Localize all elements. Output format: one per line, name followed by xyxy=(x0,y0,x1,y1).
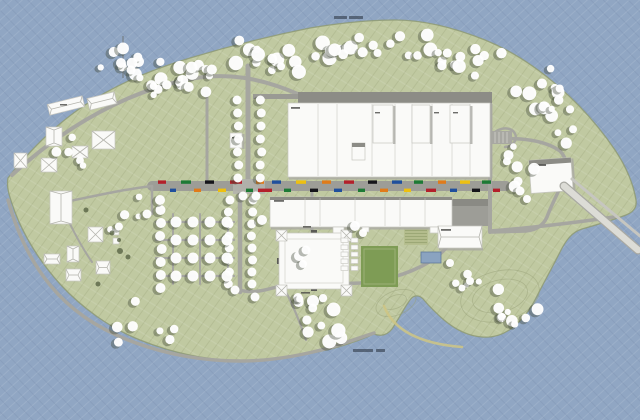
building xyxy=(270,197,453,230)
tree xyxy=(143,210,152,219)
tree xyxy=(257,215,267,225)
text-label-smudge xyxy=(453,112,458,113)
tree xyxy=(247,280,256,289)
tree xyxy=(150,92,156,98)
cabin xyxy=(341,259,348,264)
tree xyxy=(328,43,341,56)
shop-sign xyxy=(334,189,342,192)
building xyxy=(88,227,103,242)
shop-sign xyxy=(368,180,377,183)
entrance-mark xyxy=(311,230,317,233)
tree xyxy=(256,96,265,105)
tree xyxy=(510,85,522,97)
tree xyxy=(561,138,572,149)
tree xyxy=(98,64,104,70)
building-footprint xyxy=(373,105,393,143)
shop-sign xyxy=(344,180,354,183)
shop-sign xyxy=(414,180,423,183)
building-footprint xyxy=(279,233,349,289)
tree xyxy=(188,271,199,282)
cabin xyxy=(351,245,358,250)
cabin xyxy=(341,266,348,271)
building xyxy=(352,143,365,160)
tree xyxy=(331,323,345,337)
tree xyxy=(68,134,75,141)
shop-sign xyxy=(272,180,281,183)
pool xyxy=(421,252,441,263)
tree xyxy=(248,208,257,217)
building xyxy=(279,233,349,289)
tree xyxy=(554,95,563,104)
tree xyxy=(437,61,446,70)
tree xyxy=(251,293,260,302)
tree xyxy=(112,322,123,333)
tree xyxy=(522,86,536,100)
building-shadow xyxy=(439,248,483,251)
tree xyxy=(233,96,242,105)
tree xyxy=(523,195,531,203)
building-shadow xyxy=(430,106,433,144)
building xyxy=(44,254,60,264)
tree xyxy=(369,41,378,50)
building-shadow xyxy=(242,134,245,149)
tree xyxy=(171,271,182,282)
shop-sign xyxy=(404,189,411,192)
tree xyxy=(116,58,126,68)
cabin xyxy=(351,238,358,243)
text-label-smudge xyxy=(441,229,451,231)
tree xyxy=(257,148,266,157)
shop-sign xyxy=(194,189,201,192)
shop-sign xyxy=(296,180,306,183)
tree xyxy=(505,309,511,315)
tree xyxy=(374,49,382,57)
shop-sign xyxy=(392,180,402,183)
tree xyxy=(64,148,72,156)
tree xyxy=(207,65,217,75)
shop-sign xyxy=(218,189,226,192)
shop-sign xyxy=(438,180,446,183)
tree xyxy=(498,313,506,321)
text-label-smudge xyxy=(291,107,300,109)
tree xyxy=(225,196,234,205)
tree xyxy=(156,218,166,228)
sports-field xyxy=(361,246,398,287)
bush xyxy=(96,282,101,287)
building xyxy=(276,230,287,241)
tree xyxy=(556,84,564,92)
tree xyxy=(136,194,143,201)
building xyxy=(50,191,72,224)
tree xyxy=(222,271,233,282)
tree xyxy=(188,235,199,246)
tree xyxy=(171,217,182,228)
cabin xyxy=(351,259,358,264)
tree xyxy=(358,47,368,57)
site-plan-canvas xyxy=(0,0,640,420)
tree xyxy=(521,314,530,323)
tree xyxy=(459,285,466,292)
tree xyxy=(222,217,233,228)
tree xyxy=(549,106,555,112)
tree xyxy=(170,325,179,334)
tree xyxy=(395,31,405,41)
tree xyxy=(292,65,306,79)
shop-sign xyxy=(258,189,272,192)
tree xyxy=(205,253,216,264)
tree xyxy=(229,56,243,70)
tree xyxy=(131,297,140,306)
tree xyxy=(386,39,394,47)
text-label-smudge xyxy=(60,104,67,106)
tree xyxy=(532,303,544,315)
tree xyxy=(257,109,266,118)
roof-edge xyxy=(352,143,365,147)
tree xyxy=(201,87,212,98)
building-shadow xyxy=(490,104,493,178)
tree xyxy=(51,147,61,157)
tree xyxy=(466,277,474,285)
building-shadow xyxy=(470,106,473,144)
tree xyxy=(156,257,166,267)
building xyxy=(92,131,115,149)
tree xyxy=(277,62,285,70)
tree xyxy=(233,109,242,118)
paved-surface xyxy=(452,199,488,206)
tree xyxy=(231,286,240,295)
tree xyxy=(282,44,295,57)
tree xyxy=(256,135,265,144)
building-shadow xyxy=(289,177,491,180)
cabin xyxy=(341,245,348,250)
shop-sign xyxy=(472,189,480,192)
tree xyxy=(188,253,199,264)
text-label-smudge xyxy=(301,292,310,294)
tree xyxy=(177,76,183,82)
tree xyxy=(205,271,216,282)
tree xyxy=(566,105,574,113)
cabin xyxy=(341,238,348,243)
tree xyxy=(252,192,261,201)
building xyxy=(67,246,79,262)
tree xyxy=(496,48,506,58)
tree xyxy=(327,303,341,317)
tree xyxy=(511,320,518,327)
tree xyxy=(224,208,233,217)
tree xyxy=(471,72,479,80)
building xyxy=(46,127,62,146)
water-label xyxy=(353,349,373,352)
building xyxy=(96,261,110,274)
water-label xyxy=(349,16,363,19)
building xyxy=(72,146,88,158)
tree xyxy=(569,125,577,133)
building-shadow xyxy=(393,106,396,144)
tree xyxy=(476,279,482,285)
tree xyxy=(308,304,317,313)
tree xyxy=(267,54,277,64)
tree xyxy=(165,335,174,344)
tree xyxy=(128,321,138,331)
shop-sign xyxy=(170,189,176,192)
tree xyxy=(114,338,123,347)
building xyxy=(14,153,27,168)
building xyxy=(450,105,473,144)
tree xyxy=(443,49,452,58)
shop-sign xyxy=(482,180,491,183)
tree xyxy=(354,33,364,43)
shop-sign xyxy=(310,189,318,192)
tree xyxy=(117,43,129,55)
tree xyxy=(435,49,442,56)
tree xyxy=(234,161,243,170)
building-footprint xyxy=(450,105,470,143)
tree xyxy=(256,174,265,183)
shop-sign xyxy=(450,189,457,192)
tree xyxy=(80,162,87,169)
tree xyxy=(156,327,163,334)
tree xyxy=(171,235,182,246)
bush xyxy=(126,255,131,260)
shop-sign xyxy=(284,189,291,192)
shop-sign xyxy=(181,180,191,183)
tree xyxy=(188,217,199,228)
building xyxy=(373,105,396,144)
shop-sign xyxy=(460,180,470,183)
tree xyxy=(421,29,434,42)
tree xyxy=(537,78,547,88)
tree xyxy=(554,129,561,136)
tree xyxy=(452,60,465,73)
building-footprint xyxy=(430,227,439,233)
shop-sign xyxy=(322,180,331,183)
tree xyxy=(222,235,233,246)
tree xyxy=(299,260,307,268)
cabin xyxy=(351,252,358,257)
tree xyxy=(222,253,233,264)
tree xyxy=(162,80,171,89)
tree xyxy=(302,246,311,255)
bush xyxy=(84,208,89,213)
tree xyxy=(473,55,484,66)
tree xyxy=(303,326,314,337)
tree xyxy=(205,217,216,228)
tree xyxy=(493,303,504,314)
tree xyxy=(350,221,360,231)
bush xyxy=(117,248,123,254)
paved-surface xyxy=(298,92,492,103)
shop-sign xyxy=(358,189,365,192)
tree xyxy=(248,244,257,253)
building-footprint xyxy=(412,105,430,143)
water-label xyxy=(334,16,347,19)
tree xyxy=(512,161,523,172)
tree xyxy=(205,235,216,246)
shop-sign xyxy=(205,180,214,183)
cabin xyxy=(341,252,348,257)
tree xyxy=(302,315,311,324)
tree xyxy=(184,82,194,92)
building xyxy=(412,105,433,144)
tree xyxy=(156,270,166,280)
building xyxy=(341,285,352,296)
tree xyxy=(510,143,517,150)
tree xyxy=(233,148,242,157)
building xyxy=(66,269,81,281)
tree xyxy=(493,284,504,295)
cabin xyxy=(351,266,358,271)
tree xyxy=(547,65,554,72)
tree xyxy=(136,74,143,81)
tree xyxy=(319,294,327,302)
building xyxy=(276,285,287,296)
tree xyxy=(503,157,511,165)
text-label-smudge xyxy=(303,226,311,228)
tree xyxy=(233,174,242,183)
tree xyxy=(234,36,244,46)
shop-sign xyxy=(493,189,500,192)
masterplan-svg xyxy=(0,0,640,420)
tree xyxy=(296,295,303,302)
tree xyxy=(446,259,454,267)
tree xyxy=(234,135,243,144)
tree xyxy=(311,52,320,61)
tree xyxy=(115,223,123,231)
tree xyxy=(247,268,256,277)
tree xyxy=(516,187,525,196)
tree xyxy=(157,244,167,254)
tree xyxy=(120,210,129,219)
text-label-smudge xyxy=(375,112,380,113)
bush xyxy=(117,238,121,242)
tree xyxy=(156,58,164,66)
water-label xyxy=(376,349,385,352)
tree xyxy=(248,256,257,265)
shop-sign xyxy=(246,189,253,192)
tree xyxy=(156,283,166,293)
tree xyxy=(251,48,265,62)
tree xyxy=(155,231,165,241)
tree xyxy=(256,161,265,170)
shop-sign xyxy=(380,189,388,192)
tree xyxy=(359,229,367,237)
tree xyxy=(528,163,540,175)
tree xyxy=(150,82,158,90)
tree xyxy=(234,122,243,131)
tree xyxy=(470,44,480,54)
tree xyxy=(247,232,256,241)
text-label-smudge xyxy=(274,200,284,202)
text-label-smudge xyxy=(434,112,439,113)
tree xyxy=(186,62,198,74)
shop-sign xyxy=(158,180,166,183)
building xyxy=(41,158,57,172)
tree xyxy=(171,253,182,264)
tree xyxy=(257,122,266,131)
shop-sign xyxy=(426,189,436,192)
tree xyxy=(239,192,248,201)
building xyxy=(430,227,439,233)
tree xyxy=(317,322,325,330)
tree xyxy=(155,195,165,205)
tree xyxy=(127,66,136,75)
bush xyxy=(110,231,115,236)
